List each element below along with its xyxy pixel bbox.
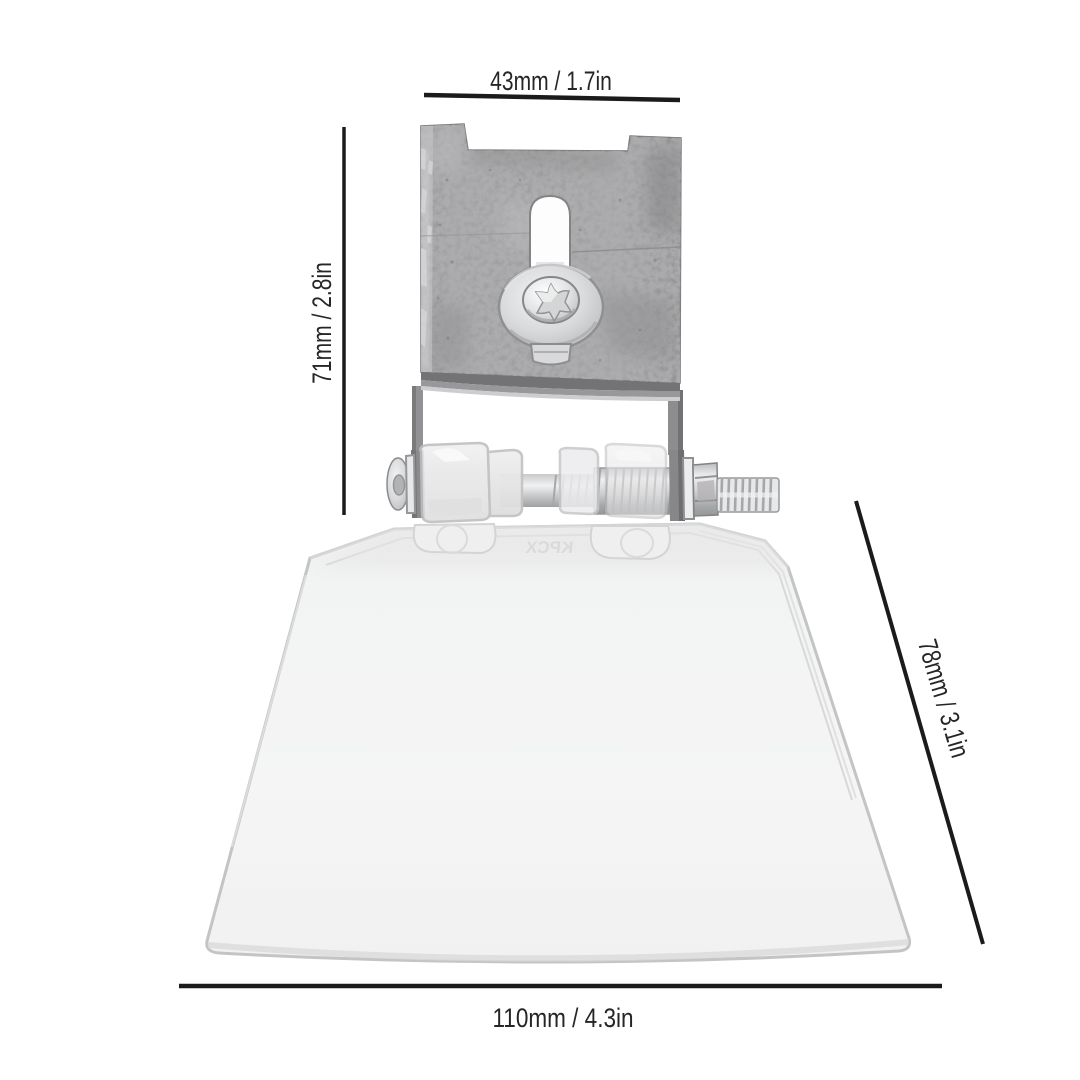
svg-text:71mm / 2.8in: 71mm / 2.8in [308, 262, 338, 384]
svg-text:110mm / 4.3in: 110mm / 4.3in [492, 1003, 633, 1033]
svg-text:43mm / 1.7in: 43mm / 1.7in [490, 67, 612, 97]
svg-text:KPCX: KPCX [524, 538, 574, 557]
